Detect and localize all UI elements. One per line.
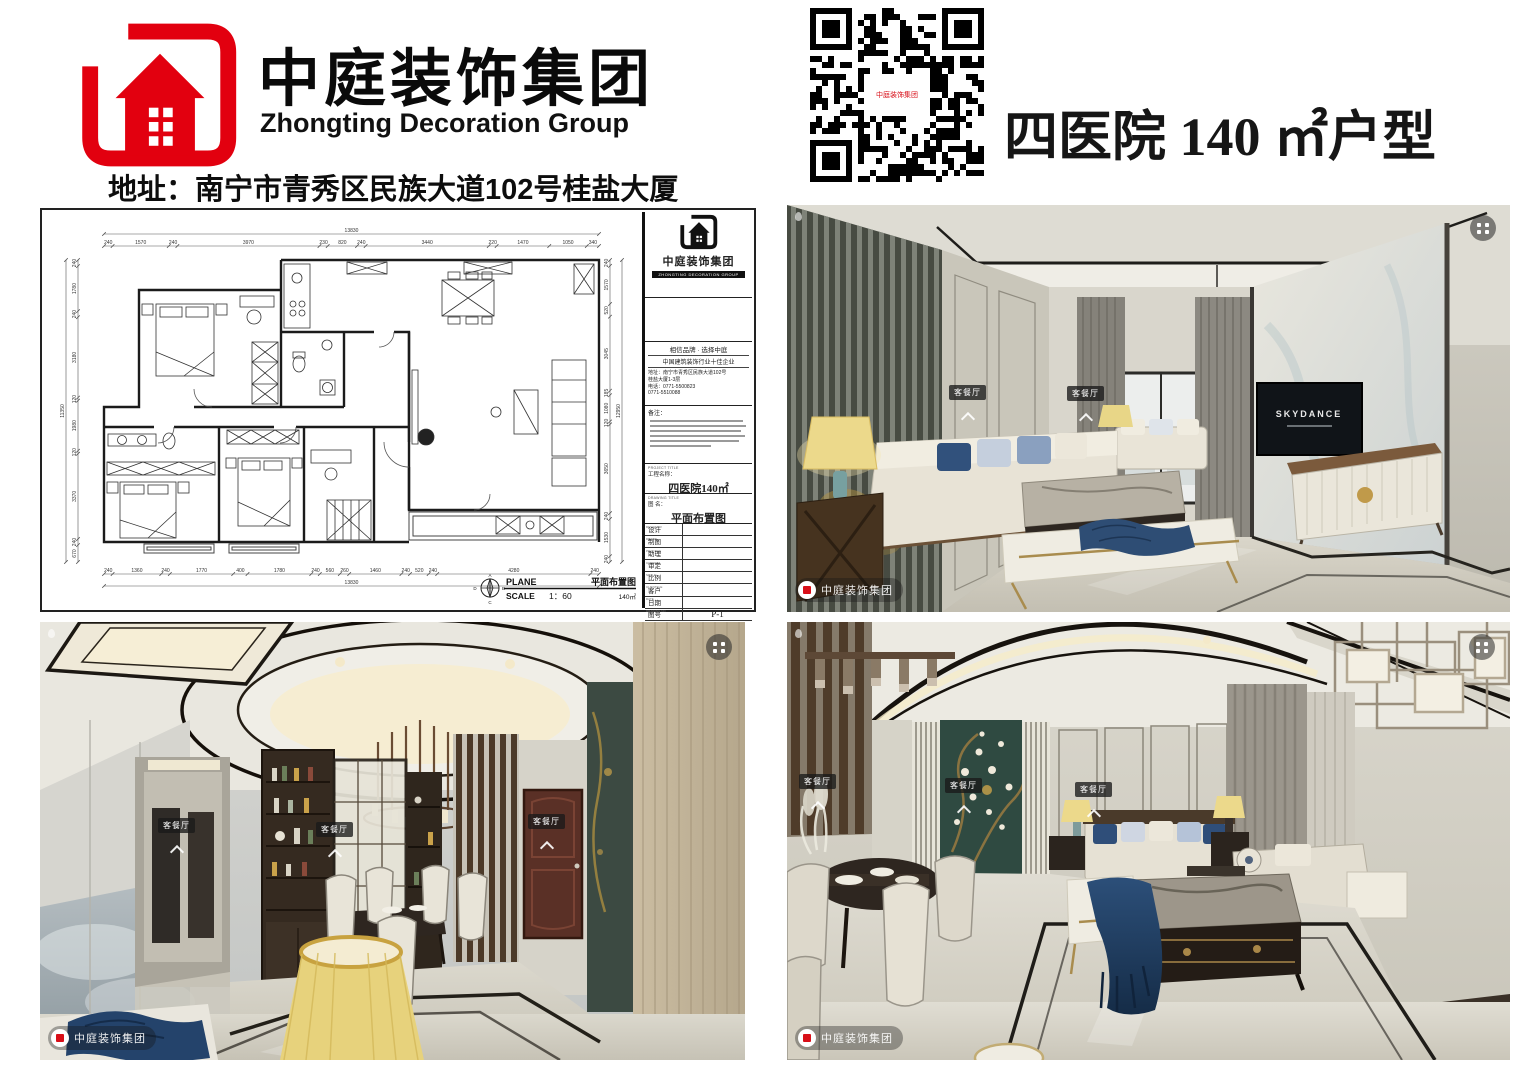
scalebar: A B C D PLANE 平面布置图 SCALE 1：60 140㎡ — [473, 573, 636, 605]
svg-text:PLANE: PLANE — [506, 577, 537, 587]
door-arcs — [158, 332, 490, 510]
svg-text:1460: 1460 — [370, 568, 381, 574]
svg-text:平面布置图: 平面布置图 — [591, 576, 636, 587]
svg-text:240: 240 — [104, 240, 113, 246]
titleblock-logo: 中庭装饰集团 ZHONGTING DECORATION GROUP — [645, 212, 752, 298]
photo-watermark: 中庭装饰集团 — [795, 1026, 903, 1050]
photo-watermark: 中庭装饰集团 — [48, 1026, 156, 1050]
photo-watermark: 中庭装饰集团 — [795, 578, 903, 602]
svg-text:560: 560 — [326, 568, 335, 574]
svg-text:1050: 1050 — [562, 240, 573, 246]
svg-text:C: C — [488, 600, 492, 605]
slat-screen-right — [1022, 722, 1050, 874]
floorplan-sheet: 2401570240397023082024034402201470105034… — [40, 208, 756, 612]
svg-text:120: 120 — [72, 448, 78, 457]
render-living-room: SKYDANCE — [787, 205, 1510, 612]
titleblock-address: 地址：南宁市青秀区民族大道102号 桂盐大厦1-3层 电话：0771-55008… — [648, 370, 749, 397]
svg-text:3180: 3180 — [72, 352, 78, 363]
svg-text:1：60: 1：60 — [549, 591, 572, 601]
qr-code: 中庭装饰集团 — [806, 4, 988, 192]
svg-text:240: 240 — [604, 259, 610, 268]
slat-screen-left — [912, 722, 940, 877]
grid-menu-button[interactable] — [1470, 215, 1496, 241]
svg-text:240: 240 — [604, 555, 610, 564]
titleblock-project: PROJECT TITLE 工程名称： 四医院140㎡ — [645, 464, 752, 494]
svg-text:1780: 1780 — [274, 568, 285, 574]
svg-text:13830: 13830 — [345, 580, 359, 586]
titleblock-drawing: DRAWING TITLE 图 名： 平面布置图 — [645, 494, 752, 524]
svg-text:340: 340 — [589, 240, 598, 246]
svg-text:3440: 3440 — [422, 240, 433, 246]
svg-text:3045: 3045 — [604, 348, 610, 359]
svg-text:13830: 13830 — [345, 228, 359, 234]
grid-menu-button[interactable] — [1469, 634, 1495, 660]
svg-text:240: 240 — [604, 512, 610, 521]
grid-menu-button[interactable] — [706, 634, 732, 660]
floorplan-drawing: 2401570240397023082024034402201470105034… — [44, 212, 642, 608]
svg-text:240: 240 — [161, 568, 170, 574]
slogan-1: 相信品牌 · 选择中庭 — [648, 344, 749, 356]
room-hotspot-tag[interactable]: 客餐厅 — [945, 778, 982, 817]
tv-brand-text: SKYDANCE — [1276, 409, 1343, 419]
svg-text:中庭装饰集团: 中庭装饰集团 — [876, 90, 918, 99]
titleblock-notes: 备注： — [645, 406, 752, 464]
svg-text:400: 400 — [236, 568, 245, 574]
titleblock-company: 中庭装饰集团 — [648, 253, 749, 269]
svg-text:1080: 1080 — [604, 403, 610, 414]
room-hotspot-tag[interactable]: 客餐厅 — [799, 774, 836, 813]
svg-text:120: 120 — [72, 395, 78, 404]
viewer-overlay — [795, 212, 802, 221]
room-hotspot-tag[interactable]: 客餐厅 — [158, 818, 195, 857]
render-dining-hall: 客餐厅 客餐厅 客餐厅 中庭装饰集团 — [40, 622, 745, 1060]
viewer-overlay — [48, 629, 55, 638]
room-hotspot-tag[interactable]: 客餐厅 — [528, 814, 565, 853]
company-name-en: Zhongting Decoration Group — [260, 108, 710, 139]
company-logo — [80, 22, 240, 168]
render-dining-living: 客餐厅 客餐厅 客餐厅 中庭装饰集团 — [787, 622, 1510, 1060]
svg-text:240: 240 — [429, 568, 438, 574]
svg-text:1470: 1470 — [517, 240, 528, 246]
svg-text:3370: 3370 — [72, 491, 78, 502]
svg-text:240: 240 — [104, 568, 113, 574]
svg-text:A: A — [488, 573, 491, 578]
entry-door — [524, 790, 582, 938]
viewer-overlay — [795, 629, 802, 638]
slogan-2: 中国建筑装饰行业十佳企业 — [648, 356, 749, 368]
red-house-logo-icon — [90, 32, 228, 159]
svg-text:240: 240 — [72, 538, 78, 547]
svg-text:3650: 3650 — [604, 463, 610, 474]
titleblock-slogans: 相信品牌 · 选择中庭 中国建筑装饰行业十佳企业 地址：南宁市青秀区民族大道10… — [645, 342, 752, 406]
svg-text:240: 240 — [311, 568, 320, 574]
company-name-cn: 中庭装饰集团 — [258, 28, 718, 118]
svg-text:260: 260 — [340, 568, 349, 574]
svg-text:240: 240 — [402, 568, 411, 574]
svg-text:520: 520 — [415, 568, 424, 574]
svg-text:1780: 1780 — [72, 283, 78, 294]
svg-text:SCALE: SCALE — [506, 591, 535, 601]
titleblock: 中庭装饰集团 ZHONGTING DECORATION GROUP 相信品牌 ·… — [642, 212, 752, 608]
svg-text:11350: 11350 — [60, 404, 66, 418]
svg-text:4280: 4280 — [508, 568, 519, 574]
svg-text:1360: 1360 — [131, 568, 142, 574]
svg-text:240: 240 — [72, 259, 78, 268]
svg-text:1530: 1530 — [604, 532, 610, 543]
svg-text:240: 240 — [169, 240, 178, 246]
company-address: 地址：南宁市青秀区民族大道102号桂盐大厦 — [108, 166, 768, 208]
svg-text:1770: 1770 — [196, 568, 207, 574]
titleblock-strip: ZHONGTING DECORATION GROUP — [652, 271, 745, 278]
balcony-rails — [144, 512, 597, 553]
svg-text:12950: 12950 — [616, 404, 622, 418]
drawing-number: P-1 — [683, 609, 752, 620]
tv: SKYDANCE — [1257, 383, 1362, 455]
room-hotspot-tag[interactable]: 客餐厅 — [1067, 386, 1104, 425]
room-hotspot-tag[interactable]: 客餐厅 — [1075, 782, 1112, 821]
svg-text:240: 240 — [591, 568, 600, 574]
floor-lamp — [797, 417, 883, 601]
svg-text:1570: 1570 — [135, 240, 146, 246]
svg-text:240: 240 — [72, 310, 78, 319]
svg-text:520: 520 — [604, 306, 610, 315]
svg-text:230: 230 — [319, 240, 328, 246]
titleblock-spacer — [645, 298, 752, 342]
room-hotspot-tag[interactable]: 客餐厅 — [316, 822, 353, 861]
svg-text:220: 220 — [489, 240, 498, 246]
unit-title: 四医院 140 ㎡户型 — [1004, 92, 1514, 171]
flyer-canvas: 中庭装饰集团 Zhongting Decoration Group 地址：南宁市… — [0, 0, 1526, 1080]
svg-text:140㎡: 140㎡ — [619, 592, 637, 601]
svg-text:3970: 3970 — [243, 240, 254, 246]
svg-text:1980: 1980 — [72, 420, 78, 431]
svg-text:240: 240 — [357, 240, 366, 246]
svg-text:D: D — [473, 586, 477, 591]
titleblock-rows: DESIGNER设计 DRAWN制图 PRACTICE助理 CONFIRM审定 … — [645, 524, 752, 621]
room-hotspot-tag[interactable]: 客餐厅 — [949, 385, 986, 424]
svg-text:185: 185 — [604, 389, 610, 398]
svg-text:670: 670 — [72, 549, 78, 558]
svg-text:120: 120 — [604, 419, 610, 428]
svg-text:1570: 1570 — [604, 279, 610, 290]
furniture — [107, 262, 594, 540]
svg-text:820: 820 — [338, 240, 347, 246]
